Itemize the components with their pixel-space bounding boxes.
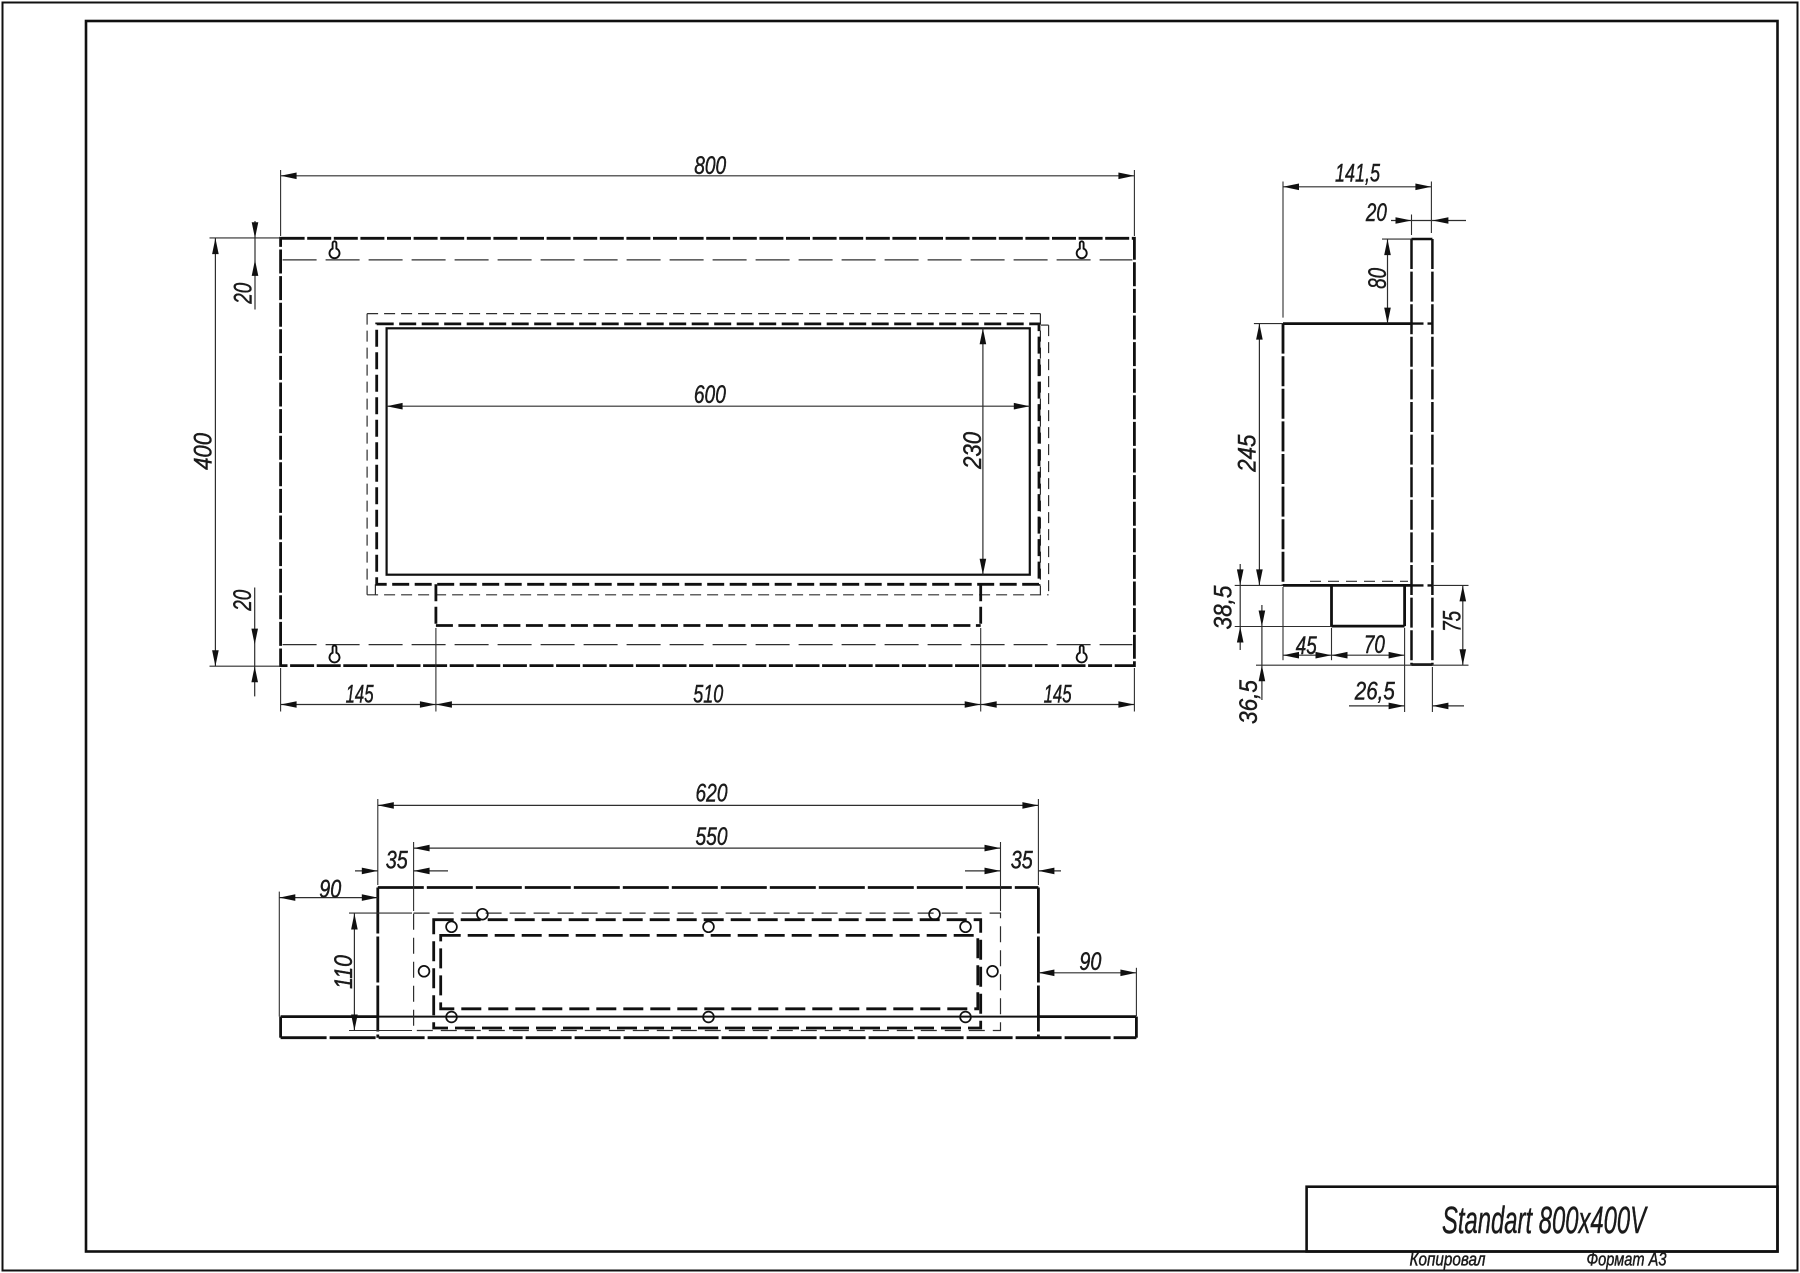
- svg-text:38,5: 38,5: [1210, 585, 1238, 629]
- svg-text:600: 600: [694, 381, 726, 409]
- svg-text:36,5: 36,5: [1235, 680, 1263, 724]
- svg-text:145: 145: [346, 680, 374, 708]
- svg-text:70: 70: [1364, 631, 1385, 659]
- svg-text:20: 20: [229, 590, 257, 612]
- svg-text:35: 35: [1011, 847, 1033, 875]
- svg-text:20: 20: [1365, 199, 1387, 227]
- svg-text:141,5: 141,5: [1335, 160, 1380, 188]
- svg-text:45: 45: [1296, 632, 1317, 660]
- svg-text:145: 145: [1044, 680, 1072, 708]
- svg-text:80: 80: [1364, 268, 1392, 289]
- svg-text:26,5: 26,5: [1354, 677, 1395, 705]
- svg-text:Формат А3: Формат А3: [1587, 1250, 1667, 1270]
- svg-text:20: 20: [230, 283, 258, 305]
- svg-text:35: 35: [386, 847, 408, 875]
- svg-text:75: 75: [1439, 611, 1467, 632]
- svg-text:550: 550: [696, 823, 728, 851]
- svg-text:800: 800: [694, 152, 726, 180]
- svg-text:400: 400: [189, 433, 217, 470]
- svg-text:Standart 800x400V: Standart 800x400V: [1442, 1200, 1648, 1242]
- svg-text:510: 510: [693, 680, 723, 708]
- svg-text:90: 90: [1079, 948, 1101, 976]
- svg-text:230: 230: [959, 432, 987, 470]
- svg-text:245: 245: [1234, 435, 1262, 473]
- svg-text:Копировал: Копировал: [1410, 1250, 1486, 1270]
- svg-text:110: 110: [330, 955, 358, 989]
- svg-text:90: 90: [319, 875, 341, 903]
- svg-text:620: 620: [696, 780, 728, 808]
